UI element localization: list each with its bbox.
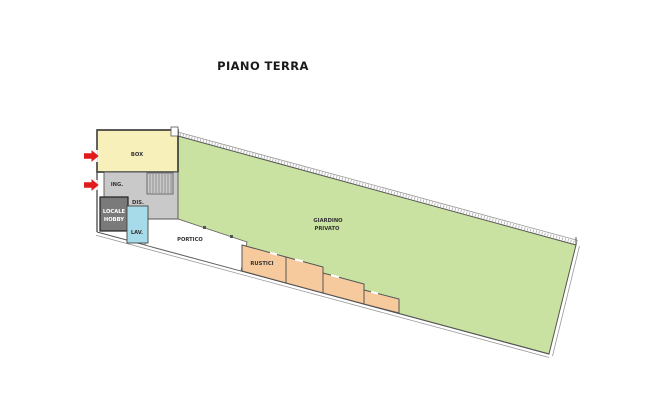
portico-pillar-1 [203,226,206,229]
portico-pillar-2 [230,235,233,238]
laundry-room [127,206,148,243]
hallway-label: DIS. [132,200,144,206]
box-corner-notch [171,127,178,136]
entrance-label: ING. [111,182,124,188]
floor-plan-drawing: PIANO TERRA BOX ING. DIS. LOCALE HOBBY L… [0,0,650,416]
stairs [147,173,173,194]
hobby-label-line2: HOBBY [104,217,124,223]
box-room [97,130,178,172]
plan-title: PIANO TERRA [217,59,309,73]
garden-label-line2: PRIVATO [315,226,341,232]
rustici-label: RUSTICI [250,261,273,267]
floor-plan-page: PIANO TERRA BOX ING. DIS. LOCALE HOBBY L… [0,0,650,416]
box-label: BOX [131,152,143,158]
laundry-label: LAV. [131,230,143,236]
portico-label: PORTICO [177,237,203,243]
hobby-label-line1: LOCALE [103,209,126,215]
garden-label-line1: GIARDINO [313,218,343,224]
